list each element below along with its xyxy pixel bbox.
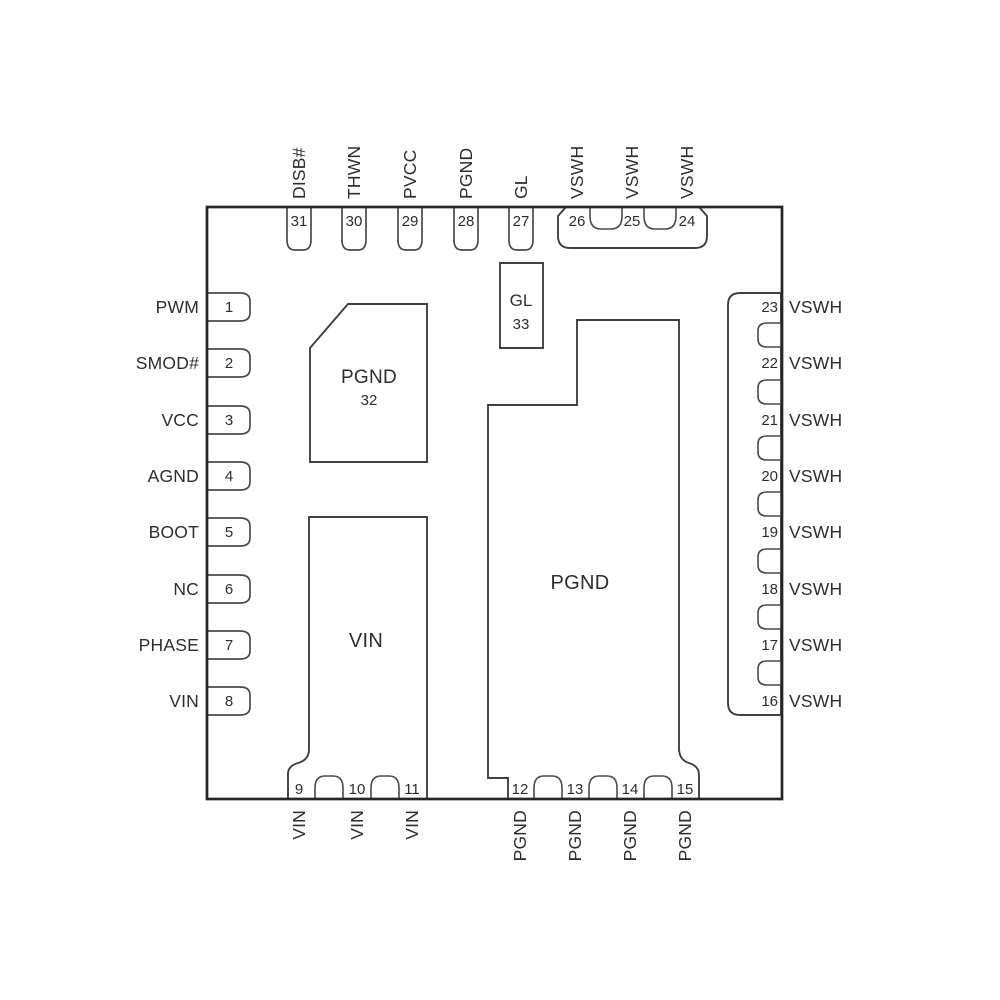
pin-19-number: 19 xyxy=(761,524,778,541)
pin-31-number: 31 xyxy=(291,213,308,230)
pin-2-label: SMOD# xyxy=(136,353,199,373)
pin-20-label: VSWH xyxy=(789,466,842,486)
pin-2-number: 2 xyxy=(225,355,233,372)
pin-9-number: 9 xyxy=(295,781,303,798)
bottom-pin-labels: VIN VIN VIN PGND PGND PGND PGND xyxy=(289,810,695,861)
pin-24-label: VSWH xyxy=(677,146,697,199)
pin-9-label: VIN xyxy=(289,810,309,840)
tab-right-22-21 xyxy=(758,380,781,404)
pin-11-label: VIN xyxy=(402,810,422,840)
pin-23-label: VSWH xyxy=(789,297,842,317)
pin-17-label: VSWH xyxy=(789,635,842,655)
tab-top-26-25 xyxy=(590,207,622,229)
pin-5-label: BOOT xyxy=(149,522,199,542)
tab-right-17-16 xyxy=(758,661,781,685)
pin-3-label: VCC xyxy=(161,410,199,430)
pin-12-number: 12 xyxy=(512,781,529,798)
pin-21-label: VSWH xyxy=(789,410,842,430)
pin-17-number: 17 xyxy=(761,637,778,654)
pin-12-label: PGND xyxy=(510,810,530,861)
pin-18-label: VSWH xyxy=(789,579,842,599)
pad-gl-33-label: GL xyxy=(510,291,533,310)
pin-8-label: VIN xyxy=(169,691,199,711)
tab-bottom-12-13 xyxy=(534,776,562,799)
tab-right-21-20 xyxy=(758,436,781,460)
pin-25-number: 25 xyxy=(624,213,641,230)
pad-vin xyxy=(288,517,427,799)
tab-right-19-18 xyxy=(758,549,781,573)
tab-bottom-13-14 xyxy=(589,776,617,799)
pin-19-label: VSWH xyxy=(789,522,842,542)
ic-pinout-diagram: 1 2 3 4 5 6 7 8 31 30 29 28 27 26 25 24 … xyxy=(0,0,1000,1000)
pinout-diagram-canvas: 1 2 3 4 5 6 7 8 31 30 29 28 27 26 25 24 … xyxy=(0,0,1000,1000)
pin-6-number: 6 xyxy=(225,581,233,598)
pad-pgnd-32-number: 32 xyxy=(361,392,378,409)
pin-27-label: GL xyxy=(511,175,531,199)
pin-13-label: PGND xyxy=(565,810,585,861)
pin-7-label: PHASE xyxy=(139,635,199,655)
tab-right-18-17 xyxy=(758,605,781,629)
pin-31-label: DISB# xyxy=(289,147,309,199)
pin-10-label: VIN xyxy=(347,810,367,840)
pad-vin-label: VIN xyxy=(349,630,383,652)
pin-24-number: 24 xyxy=(679,213,696,230)
pin-1-number: 1 xyxy=(225,299,233,316)
pad-pgnd-large xyxy=(488,320,699,799)
pin-28-number: 28 xyxy=(458,213,475,230)
pin-14-number: 14 xyxy=(622,781,639,798)
pin-8-number: 8 xyxy=(225,693,233,710)
pin-4-number: 4 xyxy=(225,468,233,485)
pin-21-number: 21 xyxy=(761,412,778,429)
pin-30-label: THWN xyxy=(344,146,364,199)
pin-4-label: AGND xyxy=(148,466,199,486)
tab-bottom-10-11 xyxy=(371,776,399,799)
pad-pgnd-32-label: PGND xyxy=(341,367,397,388)
pin-23-number: 23 xyxy=(761,299,778,316)
pin-20-number: 20 xyxy=(761,468,778,485)
pin-22-number: 22 xyxy=(761,355,778,372)
pin-7-number: 7 xyxy=(225,637,233,654)
pin-26-number: 26 xyxy=(569,213,586,230)
tab-right-20-19 xyxy=(758,492,781,516)
tab-right-23-22 xyxy=(758,323,781,347)
pad-gl-33-number: 33 xyxy=(513,316,530,333)
pin-16-number: 16 xyxy=(761,693,778,710)
pin-30-number: 30 xyxy=(346,213,363,230)
pin-28-label: PGND xyxy=(456,148,476,199)
tab-bottom-14-15 xyxy=(644,776,672,799)
pin-10-number: 10 xyxy=(349,781,366,798)
pin-11-number: 11 xyxy=(404,781,420,798)
tab-bottom-9-10 xyxy=(315,776,343,799)
pin-13-number: 13 xyxy=(567,781,584,798)
pin-29-number: 29 xyxy=(402,213,419,230)
pin-6-label: NC xyxy=(173,579,199,599)
right-pin-labels: VSWH VSWH VSWH VSWH VSWH VSWH VSWH VSWH xyxy=(789,297,842,711)
pin-1-label: PWM xyxy=(156,297,199,317)
tab-top-25-24 xyxy=(644,207,676,229)
pin-27-number: 27 xyxy=(513,213,530,230)
left-pin-labels: PWM SMOD# VCC AGND BOOT NC PHASE VIN xyxy=(136,297,199,711)
pin-16-label: VSWH xyxy=(789,691,842,711)
pin-3-number: 3 xyxy=(225,412,233,429)
pin-18-number: 18 xyxy=(761,581,778,598)
pin-22-label: VSWH xyxy=(789,353,842,373)
pin-5-number: 5 xyxy=(225,524,233,541)
pin-26-label: VSWH xyxy=(567,146,587,199)
top-pin-labels: DISB# THWN PVCC PGND GL VSWH VSWH VSWH xyxy=(289,146,697,199)
internal-pads xyxy=(288,207,781,799)
pin-15-number: 15 xyxy=(677,781,694,798)
pin-29-label: PVCC xyxy=(400,150,420,199)
pin-15-label: PGND xyxy=(675,810,695,861)
pad-pgnd-label: PGND xyxy=(551,572,610,594)
pin-25-label: VSWH xyxy=(622,146,642,199)
pin-14-label: PGND xyxy=(620,810,640,861)
